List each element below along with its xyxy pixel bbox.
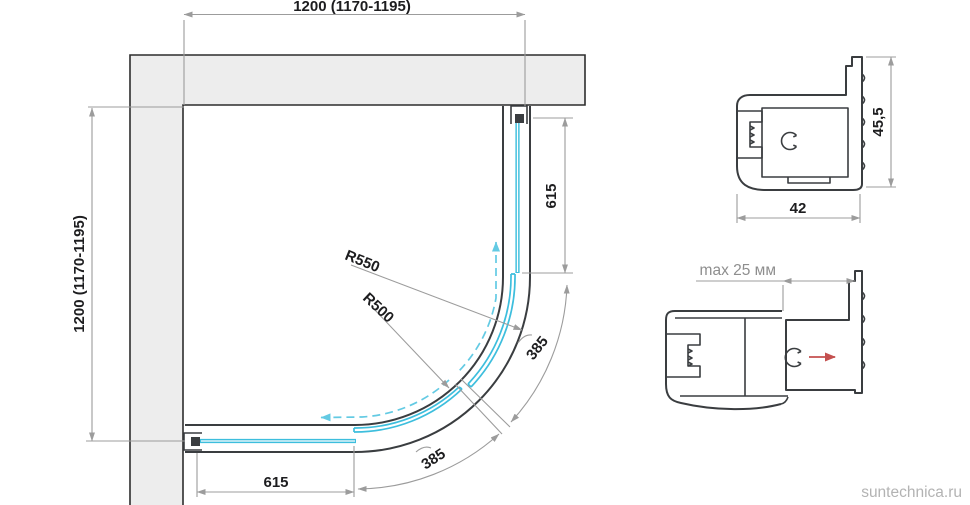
bottom-panel-dimension-label: 615 [263, 474, 288, 491]
wall-bracket-top-clamp [515, 114, 524, 123]
adjustment-glass-pocket [666, 334, 700, 377]
frame-rails [185, 106, 530, 452]
outer-rail [185, 106, 530, 452]
profile-section-detail: 45,5 42 [737, 57, 896, 223]
plan-view: 1200 (1170-1195) 1200 (1170-1195) 615 61… [71, 0, 585, 505]
adjustment-detail: max 25 мм [666, 262, 865, 409]
door-right-arc-dimension: 385 [511, 285, 567, 422]
outer-radius-label: R550 [343, 247, 383, 276]
door-right-end-cap [468, 274, 515, 387]
max-adjustment-label: max 25 мм [700, 262, 776, 279]
profile-cavity [762, 108, 848, 177]
technical-drawing-page: 1200 (1170-1195) 1200 (1170-1195) 615 61… [0, 0, 970, 505]
adjustment-wall-profile [786, 271, 862, 393]
watermark-text: suntechnica.ru [861, 484, 962, 501]
shower-enclosure-drawing: 1200 (1170-1195) 1200 (1170-1195) 615 61… [0, 0, 970, 505]
profile-width-label: 42 [790, 200, 807, 217]
adjustment-body-inner-lines [675, 318, 788, 404]
door-split-marks [455, 379, 510, 434]
door-bottom-arc-label: 385 [418, 445, 448, 473]
door-bottom-glass-inner [354, 387, 459, 428]
profile-bottom-notch [788, 177, 830, 183]
profile-outline [737, 57, 862, 190]
outer-radius-callout: R550 [343, 247, 522, 330]
wall-bracket-top [511, 106, 527, 124]
bottom-panel-dimension: 615 [197, 446, 354, 497]
width-dimension-label: 1200 (1170-1195) [293, 0, 411, 15]
max-adjustment-dimension: max 25 мм [696, 262, 855, 311]
inner-radius-label: R500 [359, 289, 397, 326]
profile-glass-pocket [737, 111, 762, 158]
height-dimension-label: 1200 (1170-1195) [71, 215, 88, 333]
adjustment-body-outline [666, 311, 782, 409]
profile-height-dimension: 45,5 [866, 57, 896, 187]
door-right-arc-label: 385 [523, 333, 552, 363]
door-motion-arrows [321, 242, 496, 418]
max-adjustment-leader [696, 281, 783, 311]
profile-height-label: 45,5 [870, 107, 887, 136]
inner-radius-callout: R500 [359, 289, 449, 388]
adjustment-screw-channel [785, 349, 801, 367]
profile-width-dimension: 42 [737, 194, 860, 223]
right-panel-dimension-label: 615 [543, 183, 560, 208]
inner-rail [185, 106, 503, 425]
door-bottom-arc-dimension: 385 [358, 434, 499, 489]
profile-screw-channel [782, 133, 797, 150]
door-open-arrow-up [459, 242, 496, 371]
wall-bracket-bottom-clamp [191, 437, 200, 446]
fixed-panels [200, 115, 518, 441]
wall-bracket-bottom [184, 433, 202, 450]
